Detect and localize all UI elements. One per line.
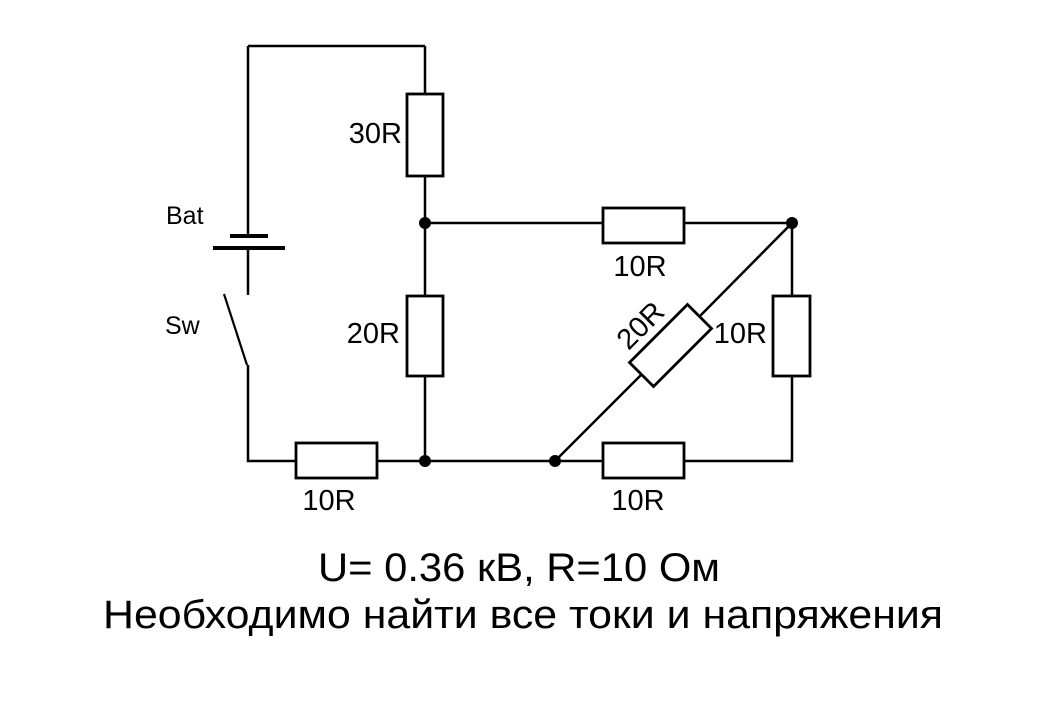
resistor-10r-right-label: 10R [714,318,767,350]
resistor-10r-bottom-right-body [603,443,684,478]
resistor-10r-top-label: 10R [613,251,666,283]
schematic-page: Bat Sw 30R 20R 10R 10R 20R 10R 10R U= 0.… [0,0,1039,709]
resistor-30r-body [407,94,443,176]
wire-r10right-to-bottom [684,376,792,461]
junction-dot [786,217,798,229]
junction-dot [549,455,561,467]
junction-dot [419,217,431,229]
resistor-10r-bottom-left-label: 10R [302,485,355,517]
circuit-diagram: Bat Sw 30R 20R 10R 10R 20R 10R 10R U= 0.… [0,0,1039,709]
caption-line-2: Необходимо найти все токи и напряжения [103,593,943,637]
resistor-10r-top-body [603,208,684,243]
wires [248,46,792,461]
resistor-20r-middle-body [407,296,443,376]
battery-label: Bat [166,202,204,230]
battery-icon [213,236,285,248]
resistor-20r-middle-label: 20R [347,318,400,350]
switch-icon [224,294,247,365]
caption-line-1: U= 0.36 кВ, R=10 Ом [318,546,720,590]
resistor-10r-bottom-left-body [296,443,377,478]
wire-bottomleft-corner [248,365,296,461]
resistor-10r-right-body [773,296,810,376]
resistor-30r-label: 30R [349,118,402,150]
switch-blade [224,294,247,365]
resistor-10r-bottom-right-label: 10R [611,485,664,517]
switch-label: Sw [165,312,201,340]
junction-dot [419,455,431,467]
